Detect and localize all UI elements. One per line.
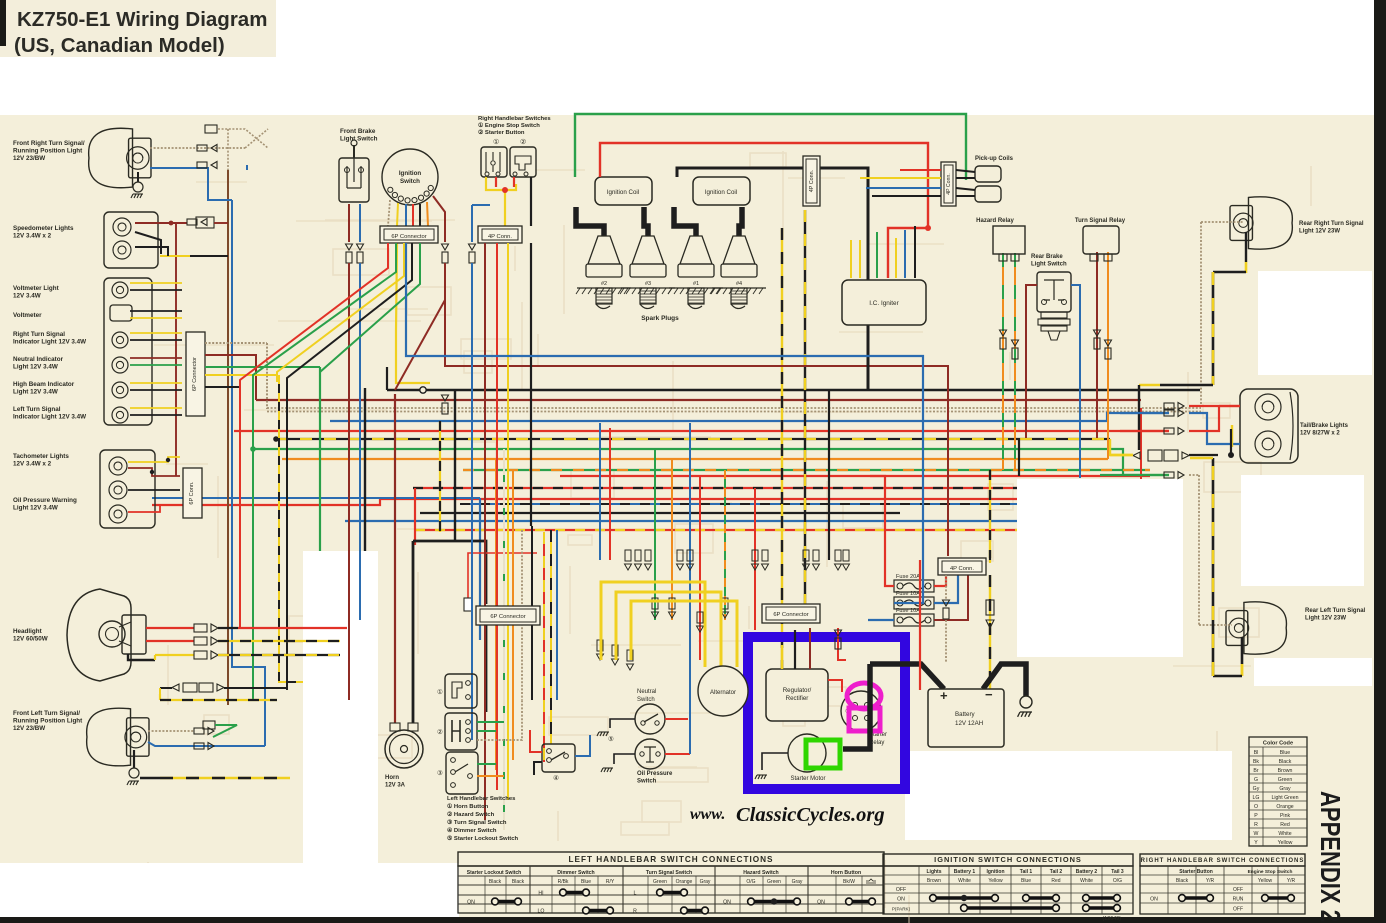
- svg-text:④: ④: [553, 774, 559, 782]
- svg-text:Gray: Gray: [792, 879, 803, 885]
- svg-text:Gray: Gray: [700, 879, 711, 885]
- svg-text:③: ③: [437, 769, 443, 777]
- svg-text:O/G: O/G: [1113, 878, 1122, 884]
- svg-text:Speedometer Lights: Speedometer Lights: [13, 225, 74, 232]
- svg-text:ON: ON: [817, 900, 825, 906]
- svg-text:Y/R: Y/R: [1206, 878, 1215, 884]
- svg-text:Light Switch: Light Switch: [1031, 262, 1067, 268]
- svg-text:Blue: Blue: [1280, 750, 1290, 756]
- svg-text:Lights: Lights: [927, 869, 942, 875]
- svg-text:G: G: [1254, 777, 1258, 783]
- svg-text:Fuse 10A: Fuse 10A: [896, 591, 920, 597]
- svg-text:Starter Motor: Starter Motor: [790, 776, 825, 782]
- svg-text:Light Switch: Light Switch: [340, 136, 378, 143]
- svg-text:Pink: Pink: [1280, 813, 1290, 819]
- svg-text:Hazard Relay: Hazard Relay: [976, 218, 1014, 224]
- svg-text:②: ②: [437, 728, 443, 736]
- svg-text:HI: HI: [538, 891, 543, 897]
- svg-text:IGNITION SWITCH CONNECTIONS: IGNITION SWITCH CONNECTIONS: [934, 855, 1082, 864]
- svg-text:Voltmeter: Voltmeter: [13, 312, 42, 319]
- svg-text:Ignition: Ignition: [399, 170, 422, 177]
- svg-text:P: P: [1254, 813, 1258, 819]
- svg-text:Green: Green: [767, 879, 781, 885]
- svg-text:Gy: Gy: [1253, 786, 1260, 792]
- svg-text:Y: Y: [1254, 840, 1258, 846]
- svg-text:①: ①: [437, 688, 443, 696]
- svg-text:Front Brake: Front Brake: [340, 128, 376, 135]
- svg-text:Oil Pressure Warning: Oil Pressure Warning: [13, 497, 77, 504]
- svg-text:Yellow: Yellow: [988, 878, 1003, 884]
- svg-text:Orange: Orange: [676, 879, 693, 885]
- svg-text:Green: Green: [653, 879, 667, 885]
- svg-text:Black: Black: [512, 879, 525, 885]
- svg-text:OFF: OFF: [1233, 907, 1243, 913]
- svg-text:12V 3.4W x 2: 12V 3.4W x 2: [13, 233, 52, 240]
- svg-text:Headlight: Headlight: [13, 628, 43, 635]
- svg-text:RIGHT HANDLEBAR SWITCH CONNECT: RIGHT HANDLEBAR SWITCH CONNECTIONS: [1141, 858, 1305, 864]
- svg-text:4P Conn.: 4P Conn.: [950, 566, 974, 572]
- svg-text:+: +: [940, 688, 948, 703]
- svg-text:Color Code: Color Code: [1263, 741, 1293, 747]
- svg-text:R/Bk: R/Bk: [558, 879, 569, 885]
- svg-text:② Starter Button: ② Starter Button: [478, 129, 525, 136]
- svg-text:Yellow: Yellow: [1278, 840, 1293, 846]
- svg-text:Dimmer Switch: Dimmer Switch: [557, 870, 594, 876]
- svg-text:ON: ON: [467, 900, 475, 906]
- svg-text:P(PARK): P(PARK): [892, 907, 911, 912]
- svg-text:6P Connector: 6P Connector: [773, 612, 808, 618]
- svg-text:Brown: Brown: [927, 878, 941, 884]
- svg-text:③ Turn Signal Switch: ③ Turn Signal Switch: [447, 819, 507, 826]
- svg-text:Rear Left Turn Signal: Rear Left Turn Signal: [1305, 608, 1366, 614]
- svg-text:Voltmeter Light: Voltmeter Light: [13, 285, 60, 292]
- svg-text:Ignition Coil: Ignition Coil: [705, 189, 737, 196]
- svg-text:Ignition: Ignition: [986, 869, 1004, 875]
- svg-text:www.: www.: [690, 806, 725, 823]
- svg-text:Bk/W: Bk/W: [843, 879, 855, 885]
- svg-text:6P Connector: 6P Connector: [391, 234, 426, 240]
- svg-text:W: W: [1254, 831, 1259, 837]
- svg-text:−: −: [985, 687, 993, 702]
- svg-text:Yellow: Yellow: [1258, 878, 1273, 884]
- svg-text:Ignition Coil: Ignition Coil: [607, 189, 639, 196]
- svg-text:R: R: [633, 909, 637, 915]
- svg-text:②: ②: [520, 138, 526, 146]
- svg-text:#2: #2: [601, 281, 607, 287]
- svg-text:Rectifier: Rectifier: [786, 695, 809, 702]
- svg-text:Brown: Brown: [1278, 768, 1293, 774]
- svg-text:Switch: Switch: [400, 178, 420, 185]
- svg-text:② Hazard Switch: ② Hazard Switch: [447, 811, 495, 818]
- svg-text:Oil Pressure: Oil Pressure: [637, 771, 673, 777]
- svg-text:ClassicCycles.org: ClassicCycles.org: [736, 804, 885, 826]
- svg-text:Starter Lockout Switch: Starter Lockout Switch: [467, 870, 521, 876]
- svg-text:Light 12V 3.4W: Light 12V 3.4W: [13, 364, 58, 371]
- svg-text:Pick-up Coils: Pick-up Coils: [975, 156, 1014, 162]
- svg-text:Blue: Blue: [1021, 878, 1031, 884]
- svg-text:Battery 2: Battery 2: [1076, 869, 1098, 875]
- svg-text:12V 8/27W x 2: 12V 8/27W x 2: [1300, 431, 1340, 437]
- svg-text:4P Conn.: 4P Conn.: [488, 234, 512, 240]
- svg-text:#3: #3: [645, 281, 651, 287]
- svg-text:Tail 2: Tail 2: [1050, 869, 1063, 875]
- svg-text:Y/R: Y/R: [1287, 878, 1296, 884]
- svg-text:ON: ON: [723, 900, 731, 906]
- svg-text:(12649): (12649): [1102, 916, 1121, 922]
- svg-text:APPENDIX 2: APPENDIX 2: [1315, 791, 1346, 922]
- svg-text:I.C. Igniter: I.C. Igniter: [869, 300, 899, 307]
- svg-text:Fuse 10A: Fuse 10A: [896, 608, 920, 614]
- svg-text:Front Left Turn Signal/: Front Left Turn Signal/: [13, 710, 80, 717]
- svg-text:Neutral: Neutral: [637, 689, 656, 695]
- svg-text:Tail 1: Tail 1: [1020, 869, 1033, 875]
- svg-text:O: O: [1254, 804, 1258, 810]
- svg-text:Alternator: Alternator: [710, 690, 736, 696]
- svg-text:Horn Button: Horn Button: [831, 870, 861, 876]
- svg-text:Running Position Light: Running Position Light: [13, 148, 83, 155]
- svg-text:Battery: Battery: [955, 711, 976, 718]
- svg-text:Light 12V 3.4W: Light 12V 3.4W: [13, 389, 58, 396]
- svg-text:Black: Black: [1279, 759, 1292, 765]
- svg-text:① Horn Button: ① Horn Button: [447, 803, 489, 810]
- svg-text:LG: LG: [1253, 795, 1260, 801]
- svg-text:High Beam Indicator: High Beam Indicator: [13, 381, 75, 388]
- svg-text:Neutral Indicator: Neutral Indicator: [13, 356, 64, 363]
- svg-text:Running Position Light: Running Position Light: [13, 718, 83, 725]
- svg-text:Black: Black: [1176, 878, 1189, 884]
- svg-text:6P Connector: 6P Connector: [490, 614, 525, 620]
- svg-text:KZ750-E1 Wiring Diagram: KZ750-E1 Wiring Diagram: [17, 8, 267, 31]
- svg-text:Turn Signal Switch: Turn Signal Switch: [646, 870, 692, 876]
- svg-text:Spark Plugs: Spark Plugs: [641, 315, 679, 322]
- svg-text:ON: ON: [897, 897, 905, 903]
- svg-text:Switch: Switch: [637, 697, 655, 703]
- svg-text:Starter Button: Starter Button: [1179, 869, 1213, 875]
- svg-text:6P Conn.: 6P Conn.: [189, 481, 195, 505]
- svg-text:(US, Canadian Model): (US, Canadian Model): [14, 34, 225, 57]
- svg-text:Turn Signal Relay: Turn Signal Relay: [1075, 218, 1126, 224]
- svg-text:Left Turn Signal: Left Turn Signal: [13, 406, 61, 413]
- svg-text:Bk: Bk: [1253, 759, 1259, 765]
- svg-text:Rear Right Turn Signal: Rear Right Turn Signal: [1299, 221, 1364, 227]
- svg-text:Rear Brake: Rear Brake: [1031, 254, 1063, 260]
- svg-text:Black: Black: [489, 879, 502, 885]
- svg-text:White: White: [958, 878, 971, 884]
- svg-text:①: ①: [493, 138, 499, 146]
- svg-text:Tail/Brake Lights: Tail/Brake Lights: [1300, 423, 1349, 429]
- svg-text:Orange: Orange: [1276, 804, 1293, 810]
- svg-text:Left Handlebar Switches: Left Handlebar Switches: [447, 796, 516, 802]
- svg-text:Green: Green: [1278, 777, 1293, 783]
- svg-text:R: R: [1254, 822, 1258, 828]
- svg-text:Indicator Light 12V 3.4W: Indicator Light 12V 3.4W: [13, 414, 86, 421]
- svg-text:#4: #4: [736, 281, 742, 287]
- svg-text:Br: Br: [1253, 768, 1258, 774]
- svg-text:12V 3.4W x 2: 12V 3.4W x 2: [13, 461, 52, 468]
- svg-text:4P Conn.: 4P Conn.: [946, 173, 952, 195]
- svg-text:12V 23/BW: 12V 23/BW: [13, 155, 45, 162]
- svg-text:Gray: Gray: [1279, 786, 1291, 792]
- svg-text:Engine Stop Switch: Engine Stop Switch: [1248, 869, 1293, 875]
- svg-text:White: White: [1278, 831, 1291, 837]
- svg-text:OFF: OFF: [1233, 887, 1243, 893]
- svg-text:Light 12V 23W: Light 12V 23W: [1305, 616, 1346, 622]
- svg-text:OFF: OFF: [896, 887, 906, 893]
- svg-text:Switch: Switch: [637, 779, 657, 785]
- svg-text:Blue: Blue: [581, 879, 591, 885]
- svg-text:Right Handlebar Switches: Right Handlebar Switches: [478, 116, 551, 122]
- svg-text:12V 60/50W: 12V 60/50W: [13, 636, 48, 643]
- svg-text:Light 12V 3.4W: Light 12V 3.4W: [13, 505, 58, 512]
- svg-text:④ Dimmer Switch: ④ Dimmer Switch: [447, 827, 497, 834]
- svg-text:⑤ Starter Lockout Switch: ⑤ Starter Lockout Switch: [447, 835, 518, 842]
- svg-text:LEFT HANDLEBAR SWITCH CONNE: LEFT HANDLEBAR SWITCH CONNECTIONS: [569, 855, 774, 864]
- svg-text:12V 3.4W: 12V 3.4W: [13, 293, 41, 300]
- svg-text:#1: #1: [693, 281, 699, 287]
- svg-text:12V 3A: 12V 3A: [385, 783, 406, 789]
- svg-text:4P Conn.: 4P Conn.: [809, 170, 815, 192]
- svg-text:Fuse 20A: Fuse 20A: [896, 574, 920, 580]
- svg-text:O/G: O/G: [746, 879, 755, 885]
- svg-text:ON: ON: [1150, 897, 1158, 903]
- svg-text:6P Connector: 6P Connector: [192, 357, 198, 391]
- svg-text:LO: LO: [538, 909, 545, 915]
- svg-text:Regulator/: Regulator/: [783, 687, 812, 694]
- svg-text:12V 12AH: 12V 12AH: [955, 720, 983, 727]
- svg-text:① Engine Stop Switch: ① Engine Stop Switch: [478, 122, 540, 129]
- svg-text:Indicator Light 12V 3.4W: Indicator Light 12V 3.4W: [13, 339, 86, 346]
- svg-text:Battery 1: Battery 1: [954, 869, 976, 875]
- svg-text:Light 12V 23W: Light 12V 23W: [1299, 229, 1340, 235]
- svg-text:Tail 3: Tail 3: [1111, 869, 1124, 875]
- svg-text:12V 23/BW: 12V 23/BW: [13, 725, 45, 732]
- svg-text:Horn: Horn: [385, 775, 399, 781]
- svg-text:R/Y: R/Y: [606, 879, 615, 885]
- svg-text:Red: Red: [1280, 822, 1290, 828]
- svg-text:Light Green: Light Green: [1271, 795, 1298, 801]
- svg-text:⑤: ⑤: [608, 735, 614, 743]
- svg-text:Tachometer Lights: Tachometer Lights: [13, 453, 69, 460]
- svg-text:Bl: Bl: [1254, 750, 1259, 756]
- svg-text:L: L: [634, 891, 637, 897]
- svg-text:Front Right Turn Signal/: Front Right Turn Signal/: [13, 140, 85, 147]
- svg-text:Right Turn Signal: Right Turn Signal: [13, 331, 65, 338]
- svg-text:Red: Red: [1051, 878, 1060, 884]
- svg-text:RUN: RUN: [1233, 897, 1244, 903]
- svg-text:Hazard Switch: Hazard Switch: [743, 870, 778, 876]
- svg-text:White: White: [1080, 878, 1093, 884]
